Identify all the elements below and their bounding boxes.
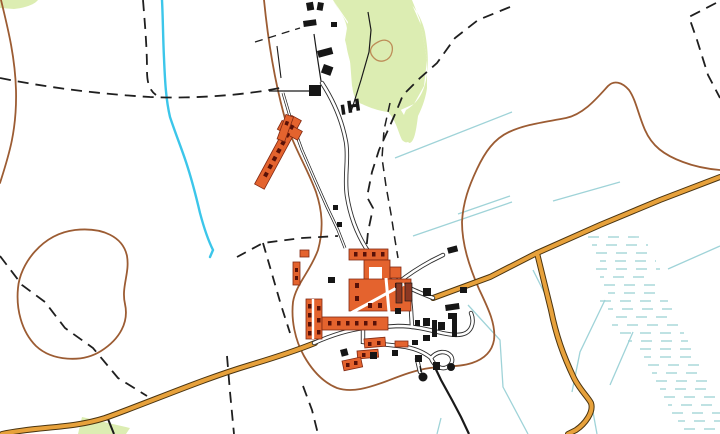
building-black [438, 322, 445, 330]
building-black [392, 350, 398, 356]
farm-courtyard [369, 267, 382, 280]
pond-black [419, 373, 428, 382]
building-black [423, 335, 430, 341]
building-black [333, 205, 338, 210]
map-canvas[interactable] [0, 0, 720, 434]
building-black [423, 288, 431, 296]
building-black [306, 2, 314, 11]
building-black [433, 362, 440, 370]
tree-dot [447, 363, 455, 371]
farm-strip-small [293, 262, 300, 285]
farm-block-east [390, 267, 401, 278]
building-black [328, 277, 335, 283]
building-black [432, 320, 437, 337]
building-black [415, 320, 420, 326]
map-svg[interactable] [0, 0, 720, 434]
building-black [370, 352, 377, 359]
farm-strip-tiny [300, 250, 309, 257]
building-black [412, 340, 418, 345]
building-black [460, 287, 467, 293]
building-black [309, 85, 321, 96]
building-black [415, 355, 422, 362]
building-black [331, 22, 337, 27]
building-black [423, 318, 430, 326]
building-black [395, 308, 401, 314]
building-black [337, 222, 342, 227]
